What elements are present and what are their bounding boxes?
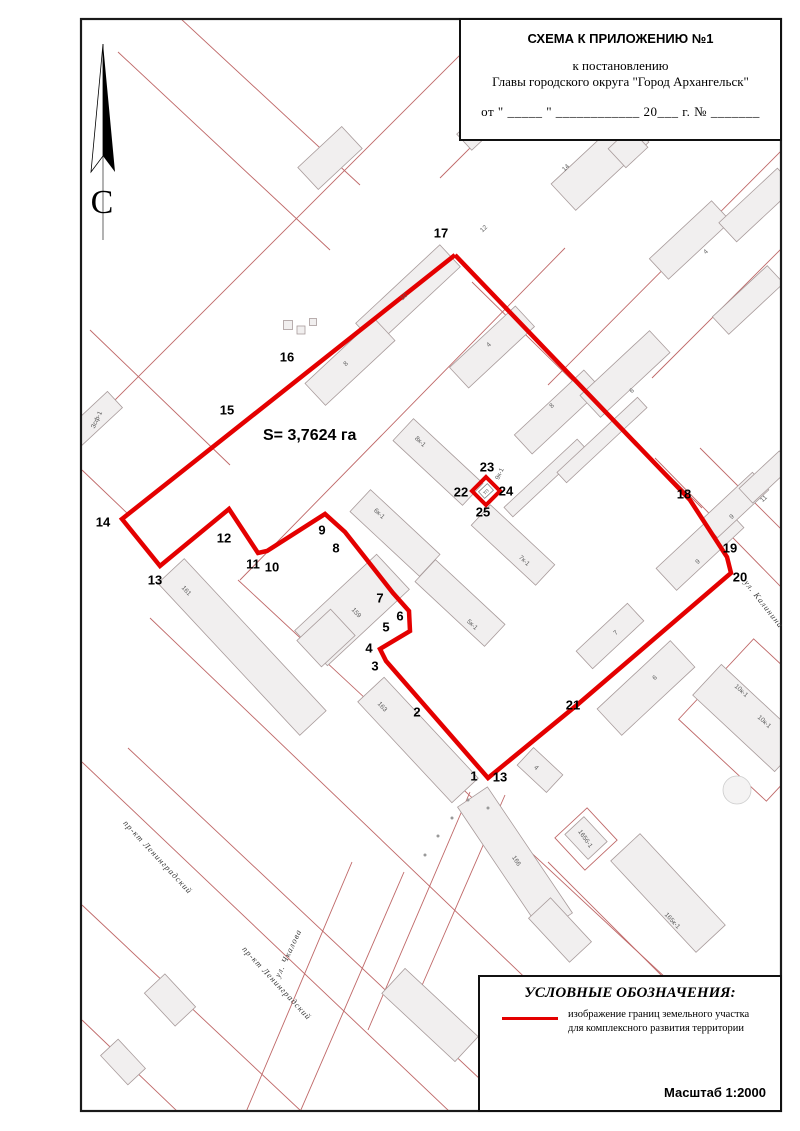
scheme-date-line: от " _____ " ____________ 20___ г. № ___… <box>461 104 780 120</box>
buildings <box>64 90 800 1085</box>
scheme-subtitle-2: Главы городского округа "Город Архангель… <box>461 74 780 90</box>
map-canvas <box>0 0 800 1131</box>
scheme-title: СХЕМА К ПРИЛОЖЕНИЮ №1 <box>461 31 780 46</box>
legend-boundary-line-sample <box>502 1017 558 1020</box>
scheme-subtitle-1: к постановлению <box>461 58 780 74</box>
legend-item-line2: для комплексного развития территории <box>568 1022 749 1036</box>
north-letter: С <box>84 184 120 222</box>
plot-area-label: S= 3,7624 га <box>263 427 356 445</box>
scheme-page: 1716151413121110987654321132120191822232… <box>0 0 800 1131</box>
map-scale-label: Масштаб 1:2000 <box>664 1085 766 1100</box>
legend-box: УСЛОВНЫЕ ОБОЗНАЧЕНИЯ: изображение границ… <box>478 975 782 1112</box>
legend-item-text: изображение границ земельного участка дл… <box>568 1008 749 1036</box>
legend-title: УСЛОВНЫЕ ОБОЗНАЧЕНИЯ: <box>480 985 780 1002</box>
title-block: СХЕМА К ПРИЛОЖЕНИЮ №1 к постановлению Гл… <box>459 18 782 141</box>
legend-item-line1: изображение границ земельного участка <box>568 1008 749 1022</box>
